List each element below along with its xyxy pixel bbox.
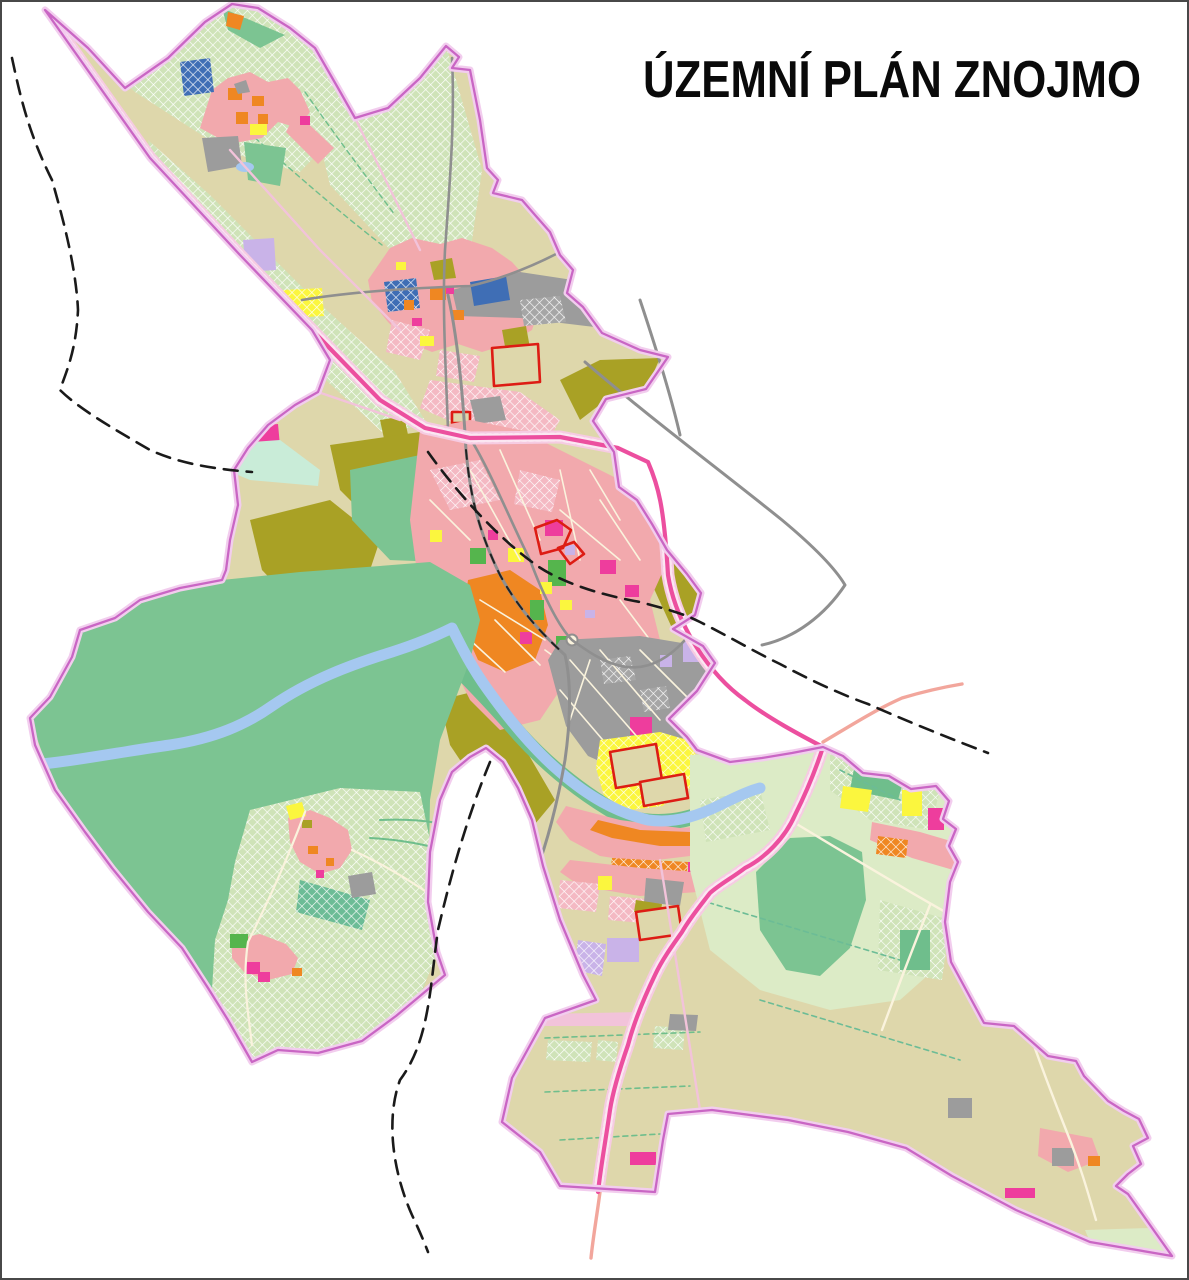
zoning-map-canvas: ÚZEMNÍ PLÁN ZNOJMO [0, 0, 1189, 1280]
forest-west [30, 562, 480, 1062]
map-title: ÚZEMNÍ PLÁN ZNOJMO [643, 51, 1141, 109]
zoning-map-page: ÚZEMNÍ PLÁN ZNOJMO [0, 0, 1189, 1280]
